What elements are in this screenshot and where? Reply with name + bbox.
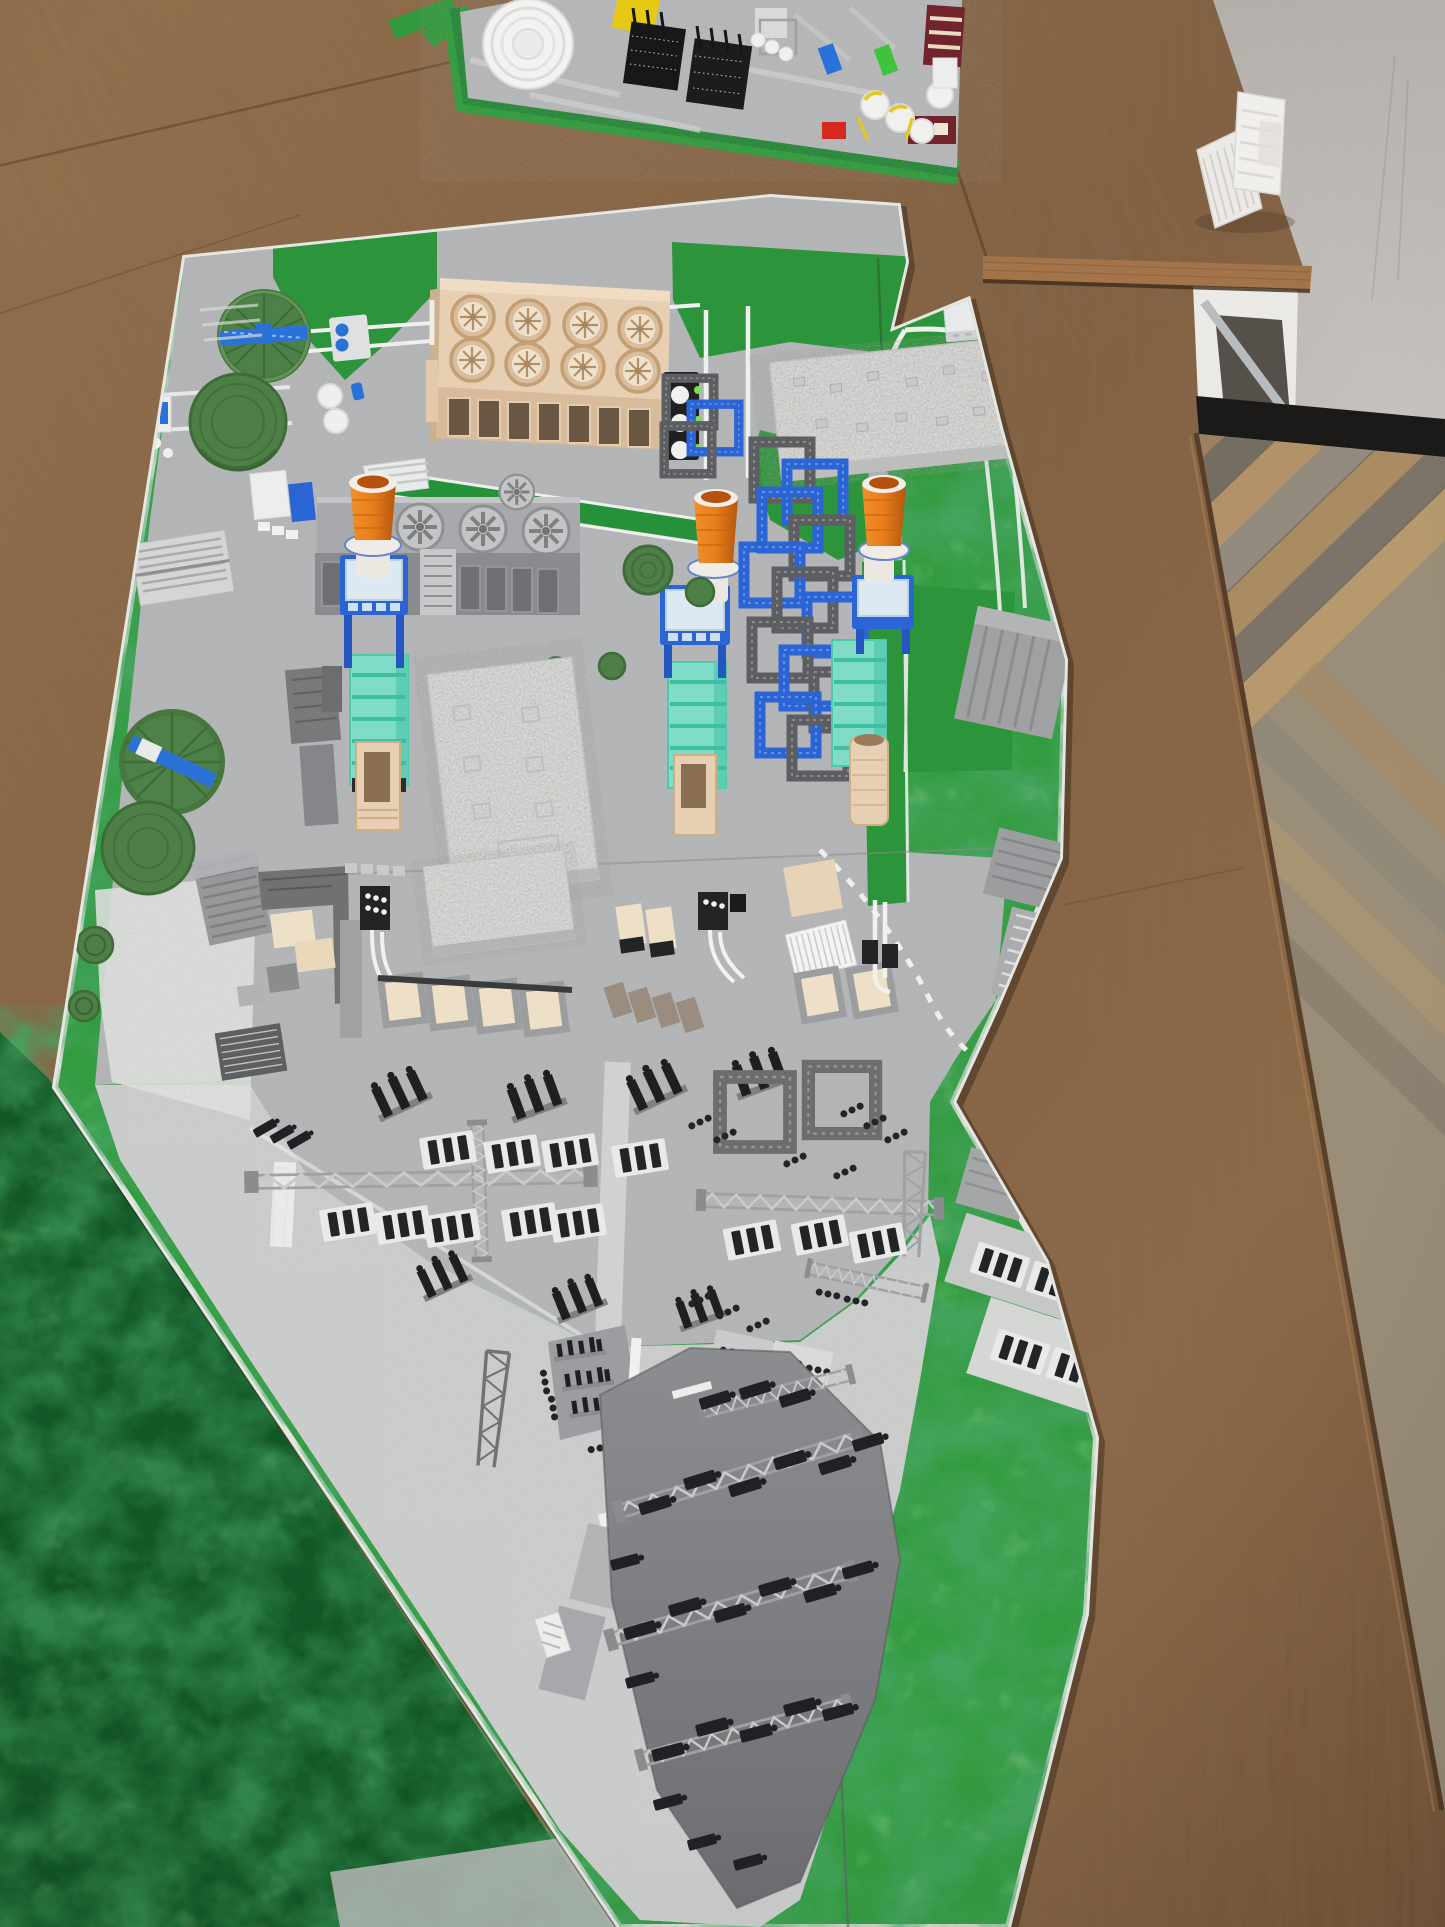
- scene-photo: [0, 0, 1445, 1927]
- photo-vignette: [0, 0, 1445, 1927]
- photo-stage: [0, 0, 1445, 1927]
